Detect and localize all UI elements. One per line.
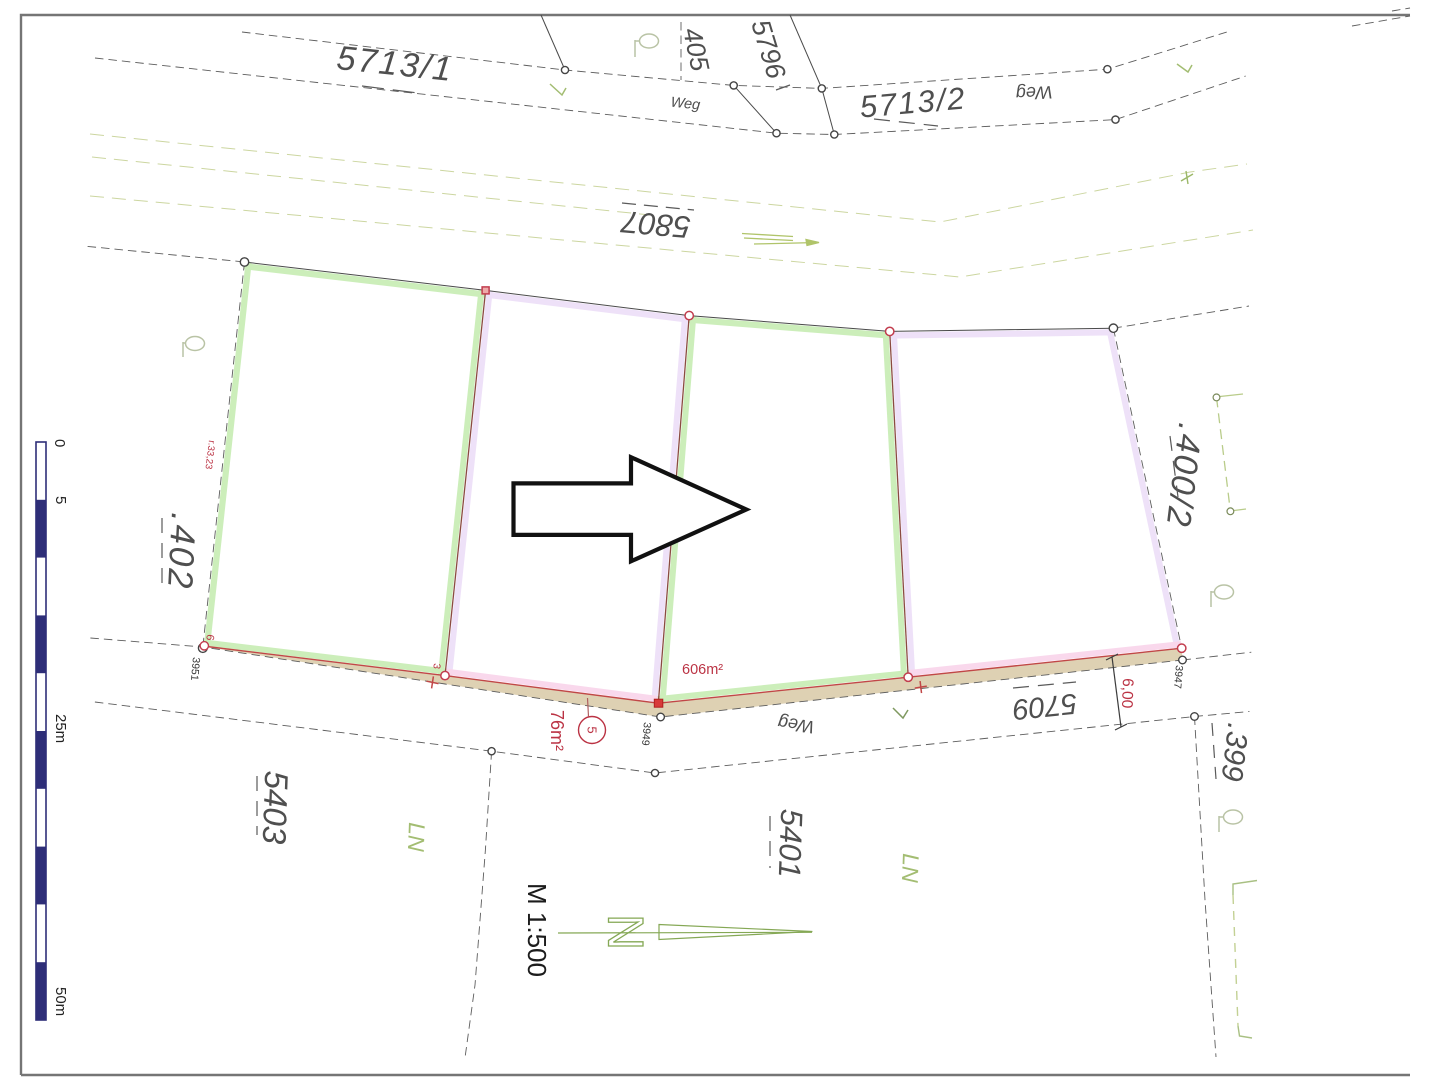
svg-text:5807: 5807 — [618, 204, 692, 245]
svg-text:5: 5 — [585, 726, 600, 733]
svg-text:5709: 5709 — [1011, 687, 1079, 726]
svg-text:6,00: 6,00 — [1118, 678, 1136, 709]
svg-text:25m: 25m — [52, 714, 69, 743]
svg-text:3947: 3947 — [1171, 665, 1185, 689]
svg-text:5401: 5401 — [772, 808, 809, 878]
svg-text:5403: 5403 — [256, 770, 296, 845]
svg-text:76m²: 76m² — [547, 710, 567, 751]
svg-text:3951: 3951 — [188, 657, 202, 681]
svg-text:3949: 3949 — [639, 722, 653, 746]
svg-text:LN: LN — [897, 853, 924, 884]
svg-text:50m: 50m — [52, 987, 69, 1016]
svg-text:M 1:500: M 1:500 — [522, 883, 552, 977]
svg-text:LN: LN — [403, 822, 430, 853]
svg-text:5: 5 — [52, 496, 69, 504]
svg-text:606m²: 606m² — [682, 662, 723, 678]
svg-text:Weg: Weg — [670, 95, 701, 114]
svg-text:.402: .402 — [160, 512, 203, 592]
svg-text:0: 0 — [51, 439, 68, 447]
svg-text:Weg: Weg — [1015, 82, 1053, 104]
svg-text:N: N — [598, 914, 654, 950]
